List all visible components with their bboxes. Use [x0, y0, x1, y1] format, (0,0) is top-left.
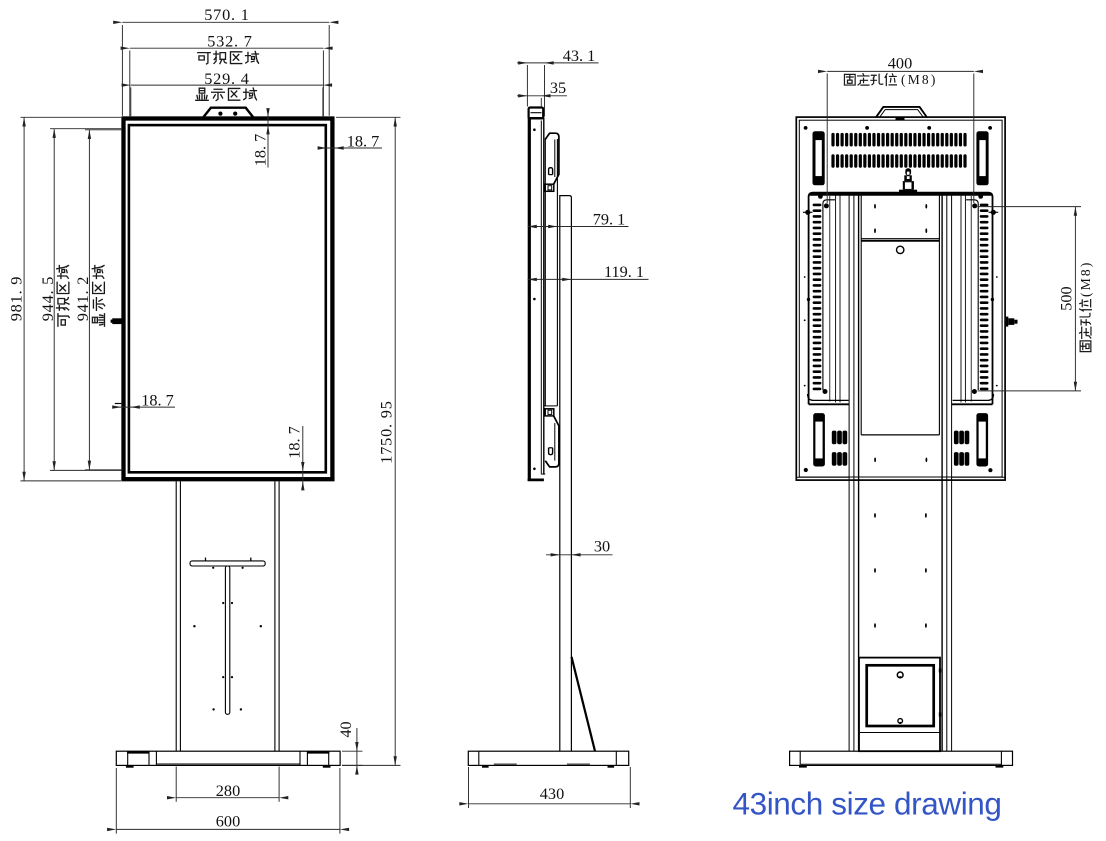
svg-text:532. 7: 532. 7: [207, 31, 253, 50]
svg-text:570. 1: 570. 1: [204, 5, 250, 24]
svg-text:40: 40: [336, 721, 355, 737]
svg-text:30: 30: [594, 537, 610, 556]
svg-text:(M8): (M8): [1078, 260, 1093, 297]
svg-text:(M8): (M8): [901, 72, 938, 87]
svg-text:119. 1: 119. 1: [604, 262, 644, 281]
svg-text:600: 600: [216, 812, 240, 831]
svg-text:280: 280: [216, 781, 240, 800]
svg-text:18. 7: 18. 7: [141, 390, 174, 409]
svg-text:43inch size drawing: 43inch size drawing: [732, 786, 1001, 822]
svg-text:500: 500: [1056, 286, 1075, 310]
svg-text:430: 430: [540, 784, 564, 803]
svg-text:18. 7: 18. 7: [285, 426, 304, 459]
svg-text:35: 35: [550, 78, 566, 97]
svg-text:79. 1: 79. 1: [593, 210, 626, 229]
svg-text:1750. 95: 1750. 95: [376, 400, 395, 463]
svg-text:400: 400: [888, 54, 912, 73]
svg-text:43. 1: 43. 1: [563, 46, 596, 65]
svg-text:18. 7: 18. 7: [347, 131, 380, 150]
svg-text:981. 9: 981. 9: [6, 276, 25, 322]
svg-text:18. 7: 18. 7: [250, 134, 269, 167]
